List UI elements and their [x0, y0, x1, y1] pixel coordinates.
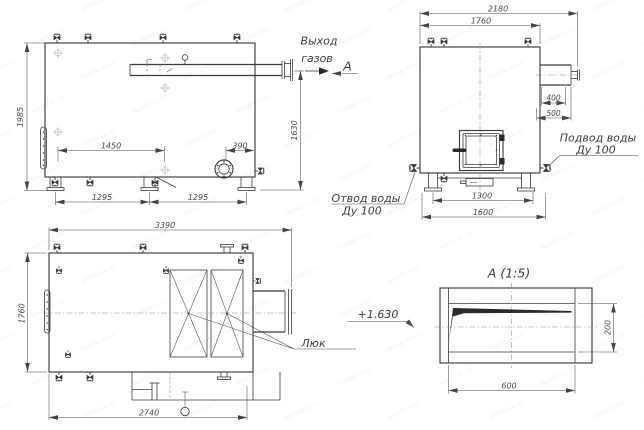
center-mark-icon — [160, 83, 170, 93]
watermark-text: teplab-kv.kz — [283, 262, 321, 286]
watermark-text: teplab-kv.kz — [335, 228, 373, 252]
valve-icon — [428, 38, 434, 47]
watermark-text: teplab-kv.kz — [233, 24, 271, 48]
dim-front-outlet-height: 1630 — [290, 120, 299, 140]
watermark-text: teplab-kv.kz — [29, 296, 67, 320]
watermark-text: teplab-kv.kz — [335, 92, 373, 116]
label-water-outlet-line1: Отвод воды — [332, 192, 401, 205]
watermark-text: teplab-kv.kz — [0, 330, 15, 354]
valve-icon — [87, 177, 93, 186]
view-direction-annotation: А — [332, 59, 358, 74]
burner-flange-icon — [215, 160, 233, 178]
water-inlet-annotation: Подвод воды Ду 100 — [548, 132, 638, 167]
watermark-text: teplab-kv.kz — [233, 228, 271, 252]
side-flange-icon — [41, 127, 47, 169]
dim-side-duct-500: 500 — [546, 109, 561, 118]
dim-side-total-width: 2180 — [488, 5, 508, 14]
watermark-text: teplab-kv.kz — [589, 398, 627, 422]
dim-plan-total-length: 3390 — [155, 221, 175, 230]
watermark-text: teplab-kv.kz — [131, 228, 169, 252]
dim-plan-base-length: 2740 — [139, 408, 159, 417]
watermark-text: teplab-kv.kz — [233, 92, 271, 116]
valve-icon — [253, 278, 260, 283]
watermark-text: teplab-kv.kz — [487, 398, 525, 422]
watermark-text: teplab-kv.kz — [0, 126, 15, 150]
gas-duct-plan — [253, 289, 292, 335]
watermark-text: teplab-kv.kz — [487, 126, 525, 150]
watermark-text: teplab-kv.kz — [589, 0, 627, 14]
pipe-stub-icon — [218, 372, 231, 380]
valve-icon — [163, 266, 168, 273]
watermark-text: teplab-kv.kz — [29, 92, 67, 116]
watermark-text: teplab-kv.kz — [335, 24, 373, 48]
support-legs — [47, 177, 255, 191]
center-mark-icon — [53, 127, 63, 137]
watermark-text: teplab-kv.kz — [233, 364, 271, 388]
watermark-text: teplab-kv.kz — [131, 364, 169, 388]
watermark-text: teplab-kv.kz — [79, 330, 117, 354]
watermark-text: teplab-kv.kz — [181, 262, 219, 286]
label-water-outlet-line2: Ду 100 — [341, 205, 382, 218]
valve-icon — [160, 34, 166, 43]
valve-icon — [85, 34, 91, 43]
dim-front-height: 1985 — [16, 107, 25, 127]
dim-front-burner-offset: 390 — [232, 141, 247, 150]
watermark-text: teplab-kv.kz — [131, 296, 169, 320]
watermark-text: teplab-kv.kz — [79, 398, 117, 422]
label-gas-outlet-line2: газов — [301, 52, 333, 65]
watermark-text: teplab-kv.kz — [181, 126, 219, 150]
watermark-text: teplab-kv.kz — [131, 160, 169, 184]
watermark-text: teplab-kv.kz — [437, 364, 475, 388]
pipe-stub-icon — [221, 245, 234, 254]
watermark-text: teplab-kv.kz — [283, 0, 321, 14]
watermark-text: teplab-kv.kz — [131, 24, 169, 48]
front-view: 1985 1630 1450 390 1295 1295 — [16, 34, 304, 205]
watermark-text: teplab-kv.kz — [29, 24, 67, 48]
watermark-text: teplab-kv.kz — [283, 194, 321, 218]
watermark-text: teplab-kv.kz — [437, 160, 475, 184]
watermark-text: teplab-kv.kz — [437, 296, 475, 320]
watermark-text: teplab-kv.kz — [29, 228, 67, 252]
watermark-text: teplab-kv.kz — [437, 92, 475, 116]
watermark-text: teplab-kv.kz — [181, 0, 219, 14]
watermark-text: teplab-kv.kz — [79, 0, 117, 14]
watermark-text: teplab-kv.kz — [233, 296, 271, 320]
dim-side-duct-400: 400 — [546, 94, 561, 103]
watermark-text: teplab-kv.kz — [539, 364, 577, 388]
dim-side-body-width: 1760 — [471, 17, 491, 26]
watermark-text: teplab-kv.kz — [385, 330, 423, 354]
watermark-text: teplab-kv.kz — [539, 228, 577, 252]
dim-side-base-1600: 1600 — [473, 208, 493, 217]
center-mark-icon — [160, 53, 170, 63]
watermark-text: teplab-kv.kz — [589, 194, 627, 218]
door-handle-icon — [453, 149, 467, 153]
watermark-text: teplab-kv.kz — [0, 58, 15, 82]
door-hinge-icon — [500, 135, 505, 142]
elevation-annotation: +1.630 — [347, 308, 414, 328]
watermark-text: teplab-kv.kz — [283, 398, 321, 422]
watermark-text: teplab-kv.kz — [335, 160, 373, 184]
furnace-door — [453, 131, 505, 171]
valve-icon — [54, 244, 60, 253]
duct-stub — [536, 65, 583, 85]
dim-front-base-right: 1295 — [188, 193, 208, 202]
watermark-text: teplab-kv.kz — [181, 58, 219, 82]
watermark-text: teplab-kv.kz — [335, 364, 373, 388]
valve-icon — [525, 38, 531, 47]
watermark-text: teplab-kv.kz — [0, 398, 15, 422]
watermark-text: teplab-kv.kz — [181, 398, 219, 422]
valve-icon — [87, 372, 93, 381]
watermark-text: teplab-kv.kz — [539, 296, 577, 320]
dim-plan-width: 1760 — [18, 303, 27, 323]
detail-title: А (1:5) — [487, 266, 530, 281]
watermark-text: teplab-kv.kz — [437, 228, 475, 252]
watermark-text: teplab-kv.kz — [385, 0, 423, 14]
watermark-text: teplab-kv.kz — [79, 262, 117, 286]
watermark-text: teplab-kv.kz — [589, 262, 627, 286]
elevation-mark: +1.630 — [358, 308, 399, 321]
valve-icon — [52, 177, 58, 186]
boiler-technical-drawing: teplab-kv.kzteplab-kv.kzteplab-kv.kztepl… — [0, 0, 644, 430]
watermark-text: teplab-kv.kz — [79, 58, 117, 82]
side-view: 2180 1760 400 500 1300 1600 Подвод воды — [331, 5, 638, 221]
watermark-text: teplab-kv.kz — [437, 24, 475, 48]
dim-detail-height: 200 — [604, 320, 613, 335]
dim-front-base-left: 1295 — [92, 193, 112, 202]
watermark-text: teplab-kv.kz — [589, 58, 627, 82]
watermark-text: teplab-kv.kz — [0, 262, 15, 286]
valve-icon — [65, 350, 70, 357]
watermark-text: teplab-kv.kz — [539, 24, 577, 48]
front-dimensions: 1985 1630 1450 390 1295 1295 — [16, 43, 304, 205]
water-outlet-valve-icon — [410, 164, 420, 171]
dim-detail-width: 600 — [501, 381, 516, 390]
plan-view: Люк — [18, 221, 357, 420]
view-direction-letter: А — [342, 59, 352, 74]
watermark-text: teplab-kv.kz — [29, 160, 67, 184]
dim-front-valve-span: 1450 — [101, 141, 121, 150]
watermark-text: teplab-kv.kz — [385, 58, 423, 82]
valve-icon — [56, 266, 61, 273]
center-mark-icon — [53, 48, 63, 58]
label-hatch: Люк — [300, 337, 326, 350]
watermark-text: teplab-kv.kz — [385, 126, 423, 150]
valve-icon — [238, 256, 243, 263]
dim-side-base-1300: 1300 — [472, 191, 492, 200]
watermark-text: teplab-kv.kz — [385, 398, 423, 422]
water-inlet-valve-icon — [540, 164, 550, 171]
watermark-text: teplab-kv.kz — [385, 262, 423, 286]
watermark-text: teplab-kv.kz — [0, 0, 15, 14]
plan-dimensions: 3390 1760 2740 — [18, 221, 292, 420]
watermark-text: teplab-kv.kz — [487, 58, 525, 82]
watermark-text: teplab-kv.kz — [131, 92, 169, 116]
label-gas-outlet-line1: Выход — [300, 35, 337, 48]
hatch-covers — [170, 270, 243, 357]
watermark-text: teplab-kv.kz — [0, 194, 15, 218]
label-water-inlet-line2: Ду 100 — [575, 144, 616, 157]
door-hinge-icon — [500, 158, 505, 165]
watermark-text: teplab-kv.kz — [487, 330, 525, 354]
